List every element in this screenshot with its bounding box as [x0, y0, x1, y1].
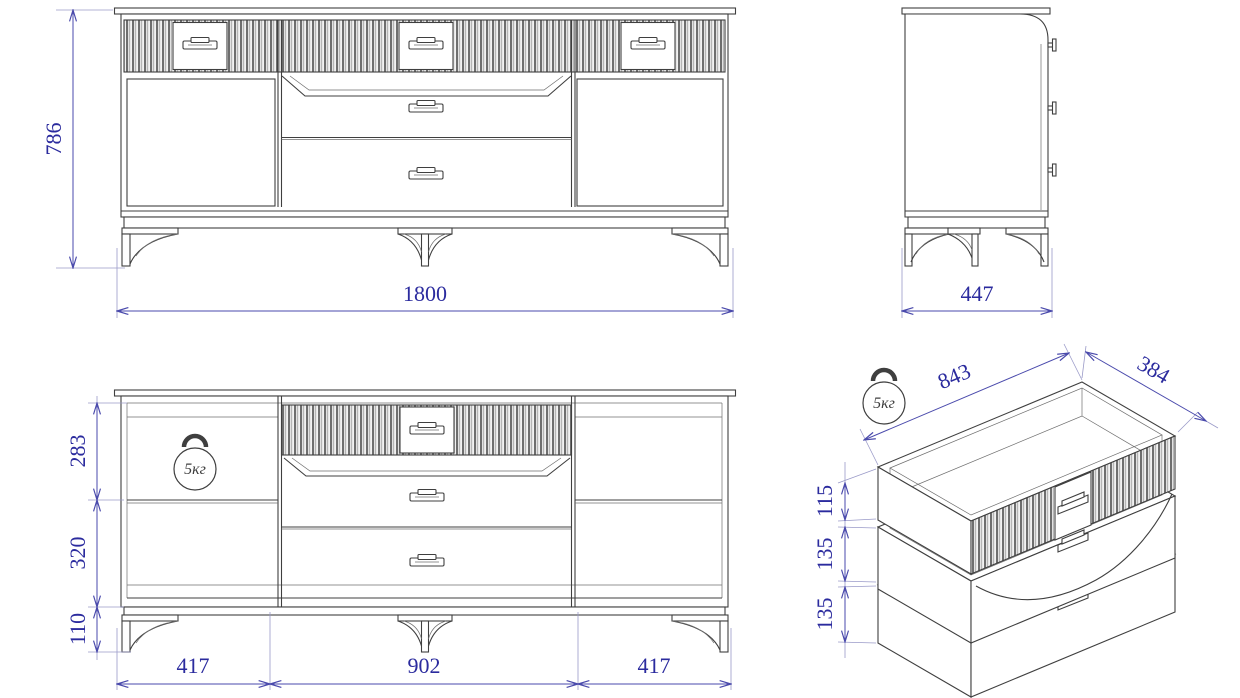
- plinth: [908, 217, 1045, 228]
- leg-bracket: [672, 228, 728, 266]
- leg-bracket: [948, 228, 980, 266]
- leg-bracket: [1006, 228, 1048, 266]
- max-load-label: 5кг: [873, 395, 895, 412]
- dim-text-height: 786: [41, 123, 66, 156]
- dim-text-left-section: 417: [177, 653, 210, 678]
- dim-text-depth: 447: [961, 281, 994, 306]
- dim-text-middle-drawer: 135: [812, 538, 837, 571]
- side-view: [902, 8, 1056, 266]
- dim-front-height: 786: [41, 10, 125, 268]
- dim-text-center-section: 902: [408, 653, 441, 678]
- side-panel: [905, 14, 1048, 217]
- interior-front-view: 5кг: [115, 390, 736, 652]
- leg-bracket: [398, 228, 452, 266]
- furniture-dimensional-drawing: 786 1800 447: [0, 0, 1240, 698]
- leg-bracket: [122, 615, 178, 652]
- leg-bracket: [905, 228, 949, 266]
- plinth: [124, 607, 725, 615]
- leg-bracket: [122, 228, 178, 266]
- dim-text-lower-compartment: 320: [65, 537, 90, 570]
- top-panel: [115, 8, 736, 14]
- dim-text-upper-compartment: 283: [65, 435, 90, 468]
- top-panel: [115, 390, 736, 396]
- dim-iso-drawer-heights: 115 135 135: [812, 462, 876, 658]
- dim-text-bottom-drawer: 135: [812, 598, 837, 631]
- leg-bracket: [672, 615, 728, 652]
- front-view: [115, 8, 736, 266]
- dim-text-leg-height: 110: [65, 613, 90, 645]
- technical-drawing-canvas: 786 1800 447: [0, 0, 1240, 698]
- leg-bracket: [398, 615, 452, 652]
- top-panel: [902, 8, 1050, 14]
- drawers-isometric-view: 5кг: [863, 370, 1175, 697]
- dim-text-width: 1800: [403, 281, 447, 306]
- plinth: [124, 217, 725, 228]
- max-load-label: 5кг: [184, 461, 206, 478]
- dim-text-right-section: 417: [638, 653, 671, 678]
- dim-text-drawer-width: 843: [934, 358, 974, 394]
- dim-text-top-drawer: 115: [812, 485, 837, 517]
